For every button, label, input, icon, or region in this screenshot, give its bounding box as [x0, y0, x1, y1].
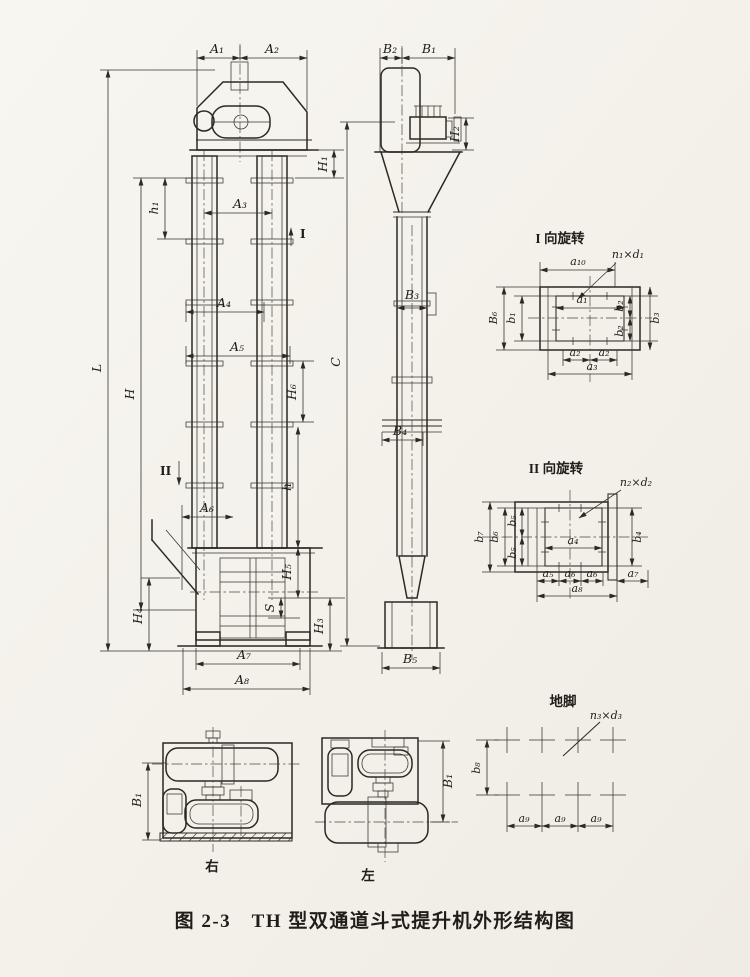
- figure-caption: 图 2-3 TH 型双通道斗式提升机外形结构图: [175, 909, 576, 932]
- dim-A5: A₅: [229, 339, 244, 354]
- dim-a10: a₁₀: [570, 255, 586, 268]
- detail2-title: II 向旋转: [529, 460, 584, 476]
- dim-b7: b₇: [473, 531, 486, 543]
- dim-B1-left-view: B₁: [440, 774, 455, 789]
- dim-a1: a₁: [577, 293, 588, 306]
- dim-B5: B₅: [402, 651, 417, 666]
- dim-H5: H₅: [279, 564, 294, 581]
- dim-b3: b₃: [649, 312, 662, 323]
- dim-h: h: [279, 483, 294, 491]
- technical-drawing: A₁ A₂ H₁ h₁ A₃ I A₄ A₅ L H H₄: [0, 0, 750, 977]
- dim-H4: H₄: [130, 608, 145, 625]
- dim-C: C: [328, 357, 343, 367]
- dim-a8: a₈: [572, 582, 584, 595]
- dim-a9-3: a₉: [591, 812, 603, 825]
- view-label-right: 右: [205, 858, 219, 874]
- dim-a2-left: a₂: [570, 346, 581, 359]
- dim-S: S: [262, 604, 277, 613]
- dim-b1: b₁: [505, 312, 518, 323]
- dim-a5: a₅: [543, 567, 555, 580]
- dim-H3: H₃: [311, 618, 326, 635]
- dim-a4: a₄: [568, 534, 579, 547]
- dim-b5-lower: b₅: [506, 547, 519, 559]
- dim-B1-right-view: B₁: [129, 793, 144, 808]
- dim-A2: A₂: [264, 41, 279, 56]
- foundation-title: 地脚: [550, 693, 577, 709]
- base-plate-hatch: [160, 833, 292, 841]
- detail1-bolt-callout: n₁×d₁: [612, 248, 644, 261]
- dim-H1: H₁: [315, 156, 330, 173]
- dim-b8: b₈: [470, 762, 483, 774]
- dim-a9-2: a₉: [555, 812, 567, 825]
- foundation-bolt-callout: n₃×d₃: [590, 709, 622, 722]
- dim-H: H: [122, 387, 137, 400]
- dim-a2-right: a₂: [599, 346, 610, 359]
- dim-A6: A₆: [199, 500, 214, 515]
- section-marker-I: I: [300, 227, 306, 241]
- dim-A3: A₃: [232, 196, 247, 211]
- dim-b2-top: b₂: [613, 300, 626, 311]
- dim-b5-upper: b₅: [506, 515, 519, 527]
- dim-A4: A₄: [216, 295, 231, 310]
- dim-a3: a₃: [587, 360, 598, 373]
- detail1-title: I 向旋转: [535, 230, 585, 246]
- scanned-page: A₁ A₂ H₁ h₁ A₃ I A₄ A₅ L H H₄: [0, 0, 750, 977]
- dim-H2: H₂: [447, 126, 462, 143]
- dim-b2-bottom: b₂: [613, 325, 626, 336]
- detail2-bolt-callout: n₂×d₂: [620, 476, 652, 489]
- dim-L: L: [89, 364, 104, 373]
- dim-B4: B₄: [392, 423, 407, 438]
- dim-a7: a₇: [628, 567, 640, 580]
- dim-B3: B₃: [404, 287, 419, 302]
- dim-B1: B₁: [421, 41, 436, 56]
- dim-b4: b₄: [631, 531, 644, 542]
- dim-B2: B₂: [382, 41, 397, 56]
- view-label-left: 左: [360, 867, 375, 883]
- dim-A1: A₁: [209, 41, 224, 56]
- dim-a6-right: a₆: [587, 567, 599, 580]
- dim-a9-1: a₉: [519, 812, 531, 825]
- section-marker-II: II: [160, 464, 172, 478]
- dim-a6-left: a₆: [565, 567, 577, 580]
- dim-H6: H₆: [284, 384, 299, 401]
- dim-b6: b₆: [488, 531, 501, 543]
- dim-A7: A₇: [236, 647, 251, 662]
- dim-A8: A₈: [234, 672, 249, 687]
- dim-h1: h₁: [146, 201, 161, 214]
- dim-B6: B₆: [487, 311, 500, 325]
